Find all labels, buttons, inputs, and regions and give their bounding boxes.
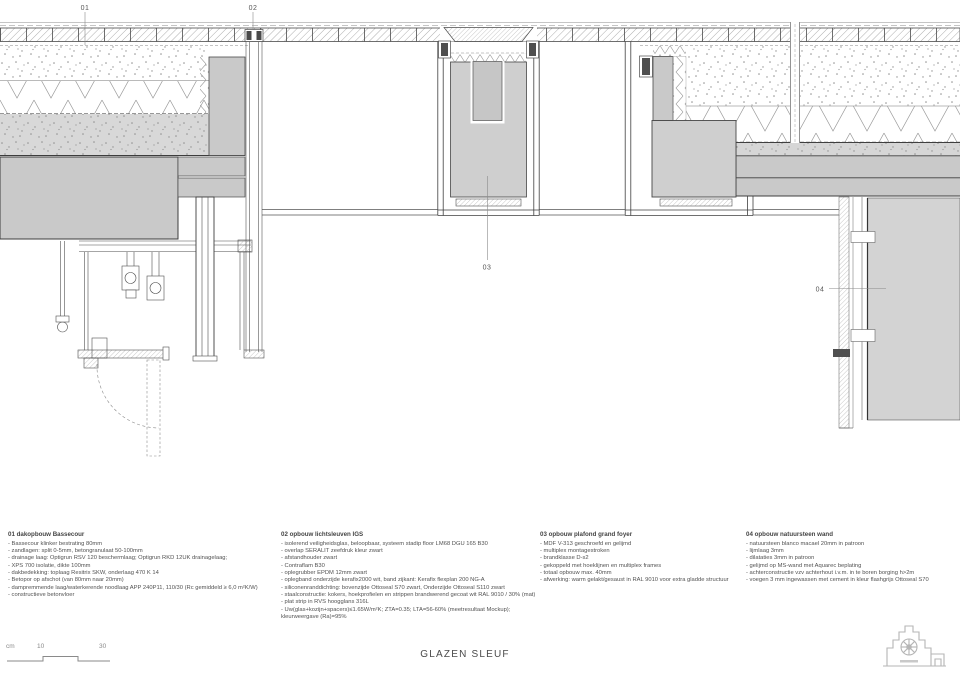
callout-03: 03 <box>483 265 492 272</box>
note-block-03: 03 opbouw plafond grand foyer - MDF V-31… <box>540 531 729 585</box>
note-block-01: 01 dakopbouw Bassecour - Bassecour klink… <box>8 531 258 599</box>
note-line: - afwerking: warm gelakt/gesaust in RAL … <box>540 577 729 584</box>
logo-caption-mark <box>900 660 918 663</box>
note-heading: 04 opbouw natuursteen wand <box>746 531 929 538</box>
note-line: - achterconstructie vzv achterhout i.v.m… <box>746 570 929 577</box>
scale-bar-unit: cm <box>6 643 15 650</box>
foyer-mullion-left <box>244 30 264 359</box>
note-line: - MDF V-313 geschroefd en gelijmd <box>540 541 729 548</box>
callout-01: 01 <box>81 5 90 12</box>
scale-bar-tick-30: 30 <box>99 643 106 650</box>
note-line: - Contraflam B30 <box>281 563 535 570</box>
note-line: - constructieve betonvloer <box>8 592 258 599</box>
note-line: - oplegrubber EPDM 12mm zwart <box>281 570 535 577</box>
note-line: - dampremmende laag/waterkerende noodlaa… <box>8 585 258 592</box>
note-line: - natuursteen blanco macael 20mm in patr… <box>746 541 929 548</box>
theater-building-logo <box>880 616 950 670</box>
note-line: - isolerend veiligheidsglas, beloopbaar,… <box>281 541 535 548</box>
natural-stone-wall <box>833 197 960 428</box>
hanger-eye <box>58 322 68 332</box>
note-line: - afstandhouder zwart <box>281 555 535 562</box>
scale-bar-tick-10: 10 <box>37 643 44 650</box>
note-line: - overlap SERALIT zeefdruk kleur zwart <box>281 548 535 555</box>
note-line: - Bassecour klinker bestrating 80mm <box>8 541 258 548</box>
note-line: - XPS 700 isolatie, dikte 100mm <box>8 563 258 570</box>
steel-column-profile <box>196 197 214 358</box>
fixture-housing <box>122 266 139 290</box>
note-heading: 03 opbouw plafond grand foyer <box>540 531 729 538</box>
note-line: - dakbedekking: toplaag Resitrix SKW, on… <box>8 570 258 577</box>
note-line: - lijmlaag 3mm <box>746 548 929 555</box>
scale-bar: cm 10 30 <box>6 643 126 667</box>
note-heading: 01 dakopbouw Bassecour <box>8 531 258 538</box>
note-line: - plat strip in RVS hoogglans 316L <box>281 599 535 606</box>
callout-02: 02 <box>249 5 258 12</box>
anchor-clip <box>851 232 875 243</box>
note-block-04: 04 opbouw natuursteen wand - natuursteen… <box>746 531 929 585</box>
note-line: - zandlagen: split 0-5mm, betongranulaat… <box>8 548 258 555</box>
note-line: - drainage laag: Optigrun RSV 120 besche… <box>8 555 258 562</box>
note-line: - gelijmd op MS-wand met Aquarec beplati… <box>746 563 929 570</box>
section-drawing: 01 02 03 04 <box>0 0 960 530</box>
note-line: - multiplex montagestroken <box>540 548 729 555</box>
callout-04: 04 <box>816 287 825 294</box>
anchor-clip <box>851 330 875 342</box>
note-block-02: 02 opbouw lichtsleuven IGS - isolerend v… <box>281 531 535 621</box>
note-line: - gekoppeld met hoeklijnen en multiplex … <box>540 563 729 570</box>
note-heading: 02 opbouw lichtsleuven IGS <box>281 531 535 538</box>
fixture-housing <box>147 276 164 300</box>
note-line: - totaal opbouw max. 40mm <box>540 570 729 577</box>
sheet-title: GLAZEN SLEUF <box>365 649 565 660</box>
glass-slot-tongue <box>473 62 502 121</box>
note-line: - voegen 3 mm ingewassen met cement in k… <box>746 577 929 584</box>
note-line: - staalconstructie: kokers, hoekprofiele… <box>281 592 535 599</box>
note-line: - oplegband onderzijde kerafix2000 wit, … <box>281 577 535 584</box>
drawing-sheet: 01 02 03 04 01 dakopbouw Bassecour - Bas… <box>0 0 960 674</box>
swing-arc <box>97 364 159 428</box>
note-line: - brandklasse D-s2 <box>540 555 729 562</box>
note-line: - Uw(glas+kozijn+spacers)≤1.65W/m²K; ZTA… <box>281 607 535 614</box>
scale-bar-line <box>6 654 116 664</box>
note-line: - dilataties 3mm in patroon <box>746 555 929 562</box>
light-slot-a <box>438 27 539 216</box>
note-line: kleurweergave (Ra)=95% <box>281 614 535 621</box>
stone-panel <box>868 198 960 420</box>
note-line: - Betopor op afschot (van 80mm naar 20mm… <box>8 577 258 584</box>
hidden-element-outline <box>147 360 160 456</box>
note-line: - siliconenranddichting: bovenzijde Otto… <box>281 585 535 592</box>
